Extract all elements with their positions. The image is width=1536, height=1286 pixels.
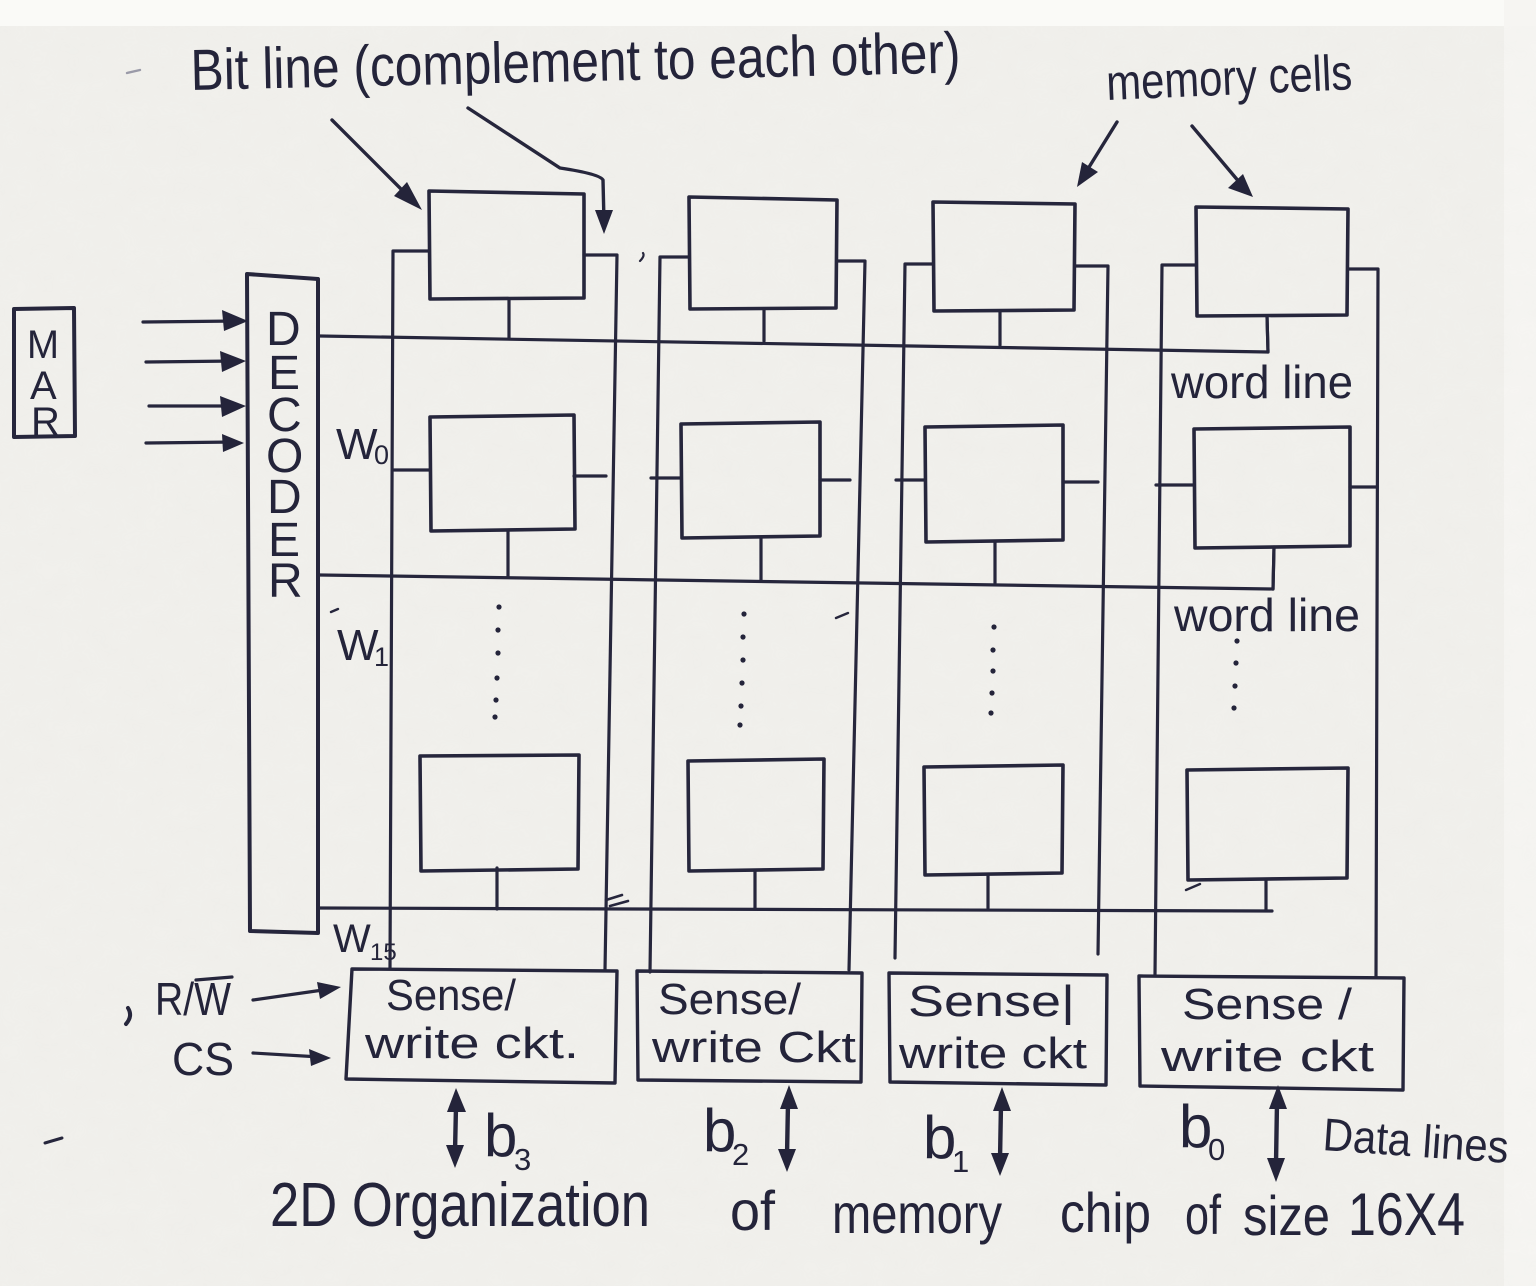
svg-text:memory: memory	[832, 1182, 1002, 1245]
svg-text:16X4: 16X4	[1348, 1181, 1465, 1248]
svg-text:write ckt.: write ckt.	[364, 1019, 579, 1068]
svg-text:chip: chip	[1060, 1181, 1151, 1244]
svg-text:word line: word line	[1170, 356, 1353, 408]
svg-text:of: of	[1185, 1183, 1221, 1246]
svg-text:15: 15	[370, 939, 397, 966]
svg-text:word line: word line	[1173, 589, 1360, 641]
svg-text:Sense/: Sense/	[386, 971, 517, 1020]
svg-text:size: size	[1243, 1184, 1330, 1247]
svg-text:write Ckt: write Ckt	[651, 1023, 856, 1072]
svg-text:of: of	[730, 1179, 775, 1242]
svg-text:write ckt: write ckt	[1160, 1032, 1374, 1081]
svg-text:R: R	[268, 555, 303, 608]
svg-text:Sense|: Sense|	[908, 977, 1075, 1026]
svg-text:1: 1	[952, 1144, 969, 1179]
svg-text:2D Organization: 2D Organization	[270, 1171, 650, 1240]
svg-text:W: W	[337, 621, 379, 670]
svg-text:Sense /: Sense /	[1182, 980, 1353, 1029]
svg-text:write ckt: write ckt	[898, 1029, 1087, 1078]
svg-text:Sense/: Sense/	[658, 975, 802, 1024]
svg-text:memory cells: memory cells	[1105, 44, 1353, 111]
svg-text:R: R	[31, 400, 60, 444]
svg-text:CS: CS	[172, 1033, 234, 1085]
svg-text:0: 0	[374, 440, 389, 470]
svg-text:0: 0	[1208, 1132, 1225, 1167]
svg-text:1: 1	[374, 642, 389, 672]
svg-text:M: M	[27, 323, 59, 367]
svg-text:2: 2	[732, 1137, 749, 1172]
svg-text:R/W: R/W	[155, 973, 231, 1025]
svg-text:b: b	[484, 1102, 517, 1169]
svg-text:W: W	[336, 420, 378, 469]
svg-text:W: W	[333, 917, 371, 961]
